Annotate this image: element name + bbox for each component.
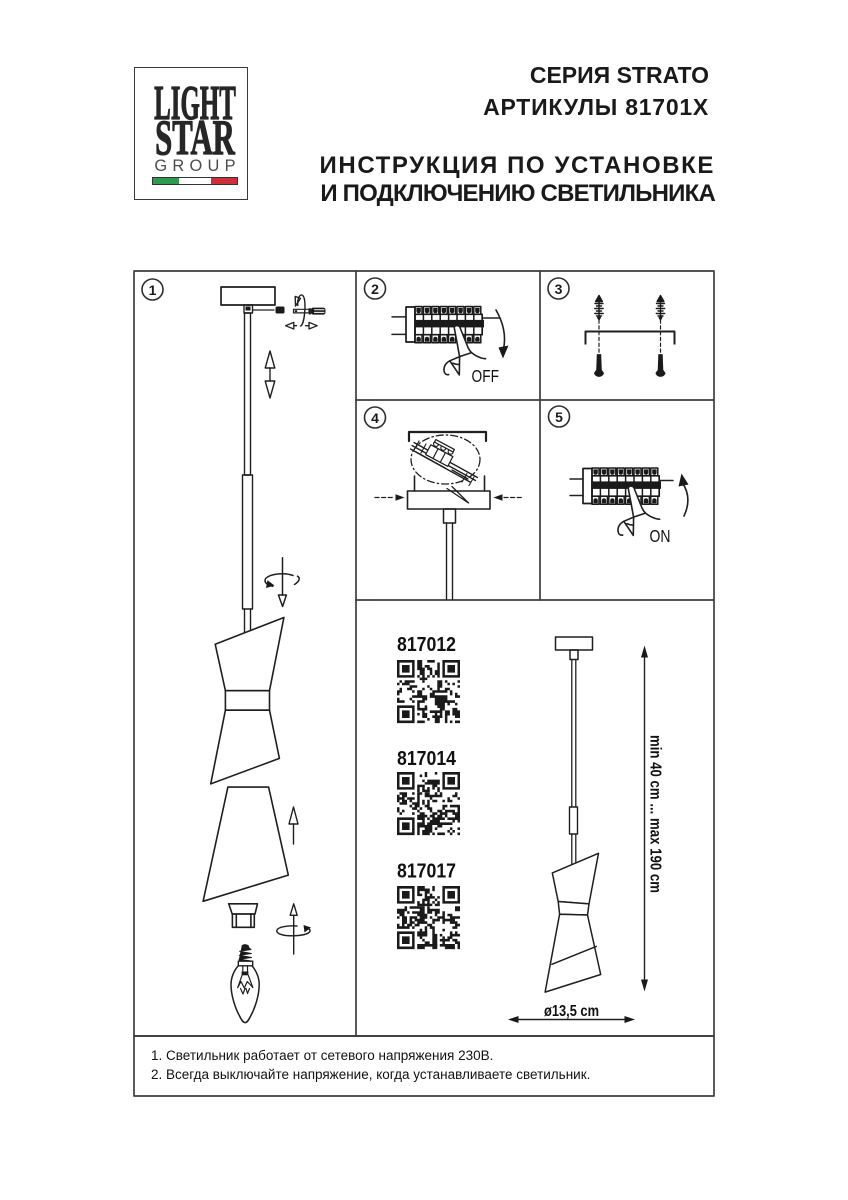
svg-text:1: 1 [149,282,157,298]
svg-text:min 40 cm ... max 190 cm: min 40 cm ... max 190 cm [647,735,664,893]
svg-text:2: 2 [371,281,379,297]
svg-text:817012: 817012 [397,634,456,656]
svg-text:5: 5 [555,409,563,425]
svg-text:817014: 817014 [397,748,457,770]
svg-text:OFF: OFF [472,366,500,386]
svg-text:ON: ON [650,526,671,546]
svg-text:ø13,5 cm: ø13,5 cm [544,1003,599,1020]
svg-text:4: 4 [371,410,379,426]
svg-text:GROUP: GROUP [154,157,240,175]
svg-text:817017: 817017 [397,861,456,883]
svg-text:3: 3 [555,281,563,297]
